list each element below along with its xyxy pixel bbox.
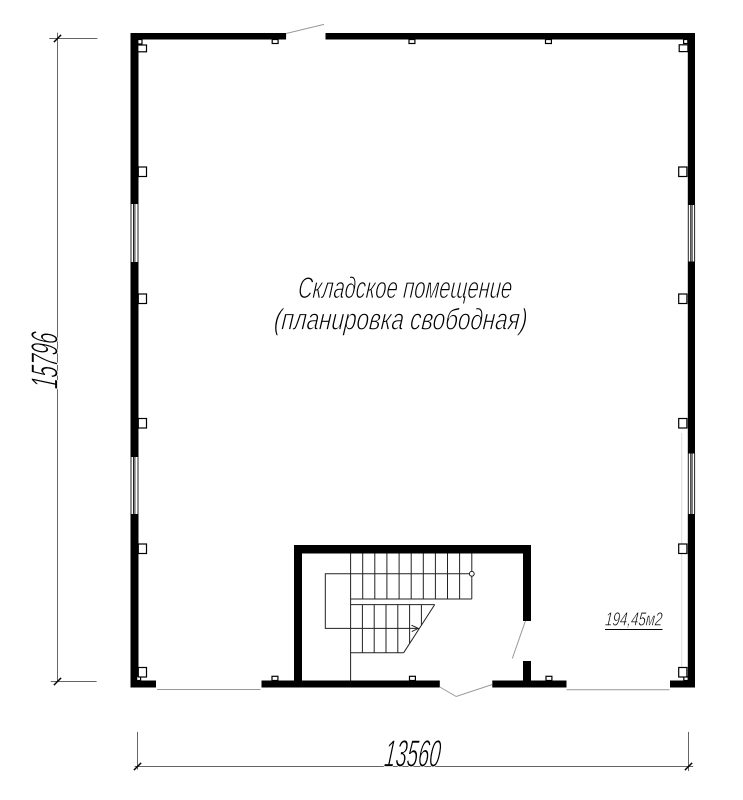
svg-text:(планировка свободная): (планировка свободная)	[273, 302, 529, 336]
svg-text:13560: 13560	[383, 733, 443, 775]
svg-text:15796: 15796	[24, 330, 66, 390]
svg-text:Складское помещение: Складское помещение	[297, 272, 514, 305]
svg-text:194,45м2: 194,45м2	[604, 609, 663, 630]
